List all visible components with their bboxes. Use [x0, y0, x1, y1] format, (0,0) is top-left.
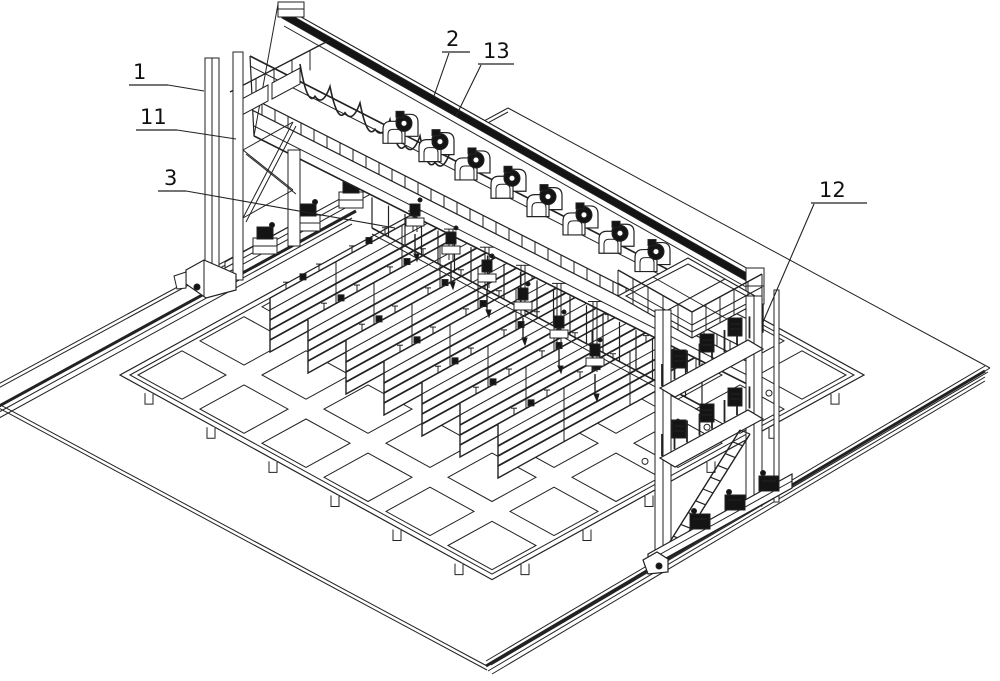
callout-11: 11 — [136, 105, 236, 139]
carriage-motor-mount — [576, 203, 584, 209]
column-rear-leg — [288, 150, 300, 246]
torch-motor-block — [554, 316, 564, 328]
callout-leader-1 — [168, 85, 204, 91]
ladder-rung — [703, 489, 713, 493]
torch-cross-slide — [514, 302, 532, 310]
platform-foot — [393, 530, 401, 541]
carriage-motor-hub — [401, 120, 407, 126]
torch-knob — [418, 198, 422, 202]
platform-bolt-hole — [642, 458, 648, 464]
platform-foot — [269, 461, 277, 472]
torch-motor-block — [410, 204, 420, 216]
shelf-equipment-unit — [728, 388, 742, 406]
ladder-rung — [725, 454, 735, 458]
platform-foot — [645, 495, 653, 506]
platform-bolt-hole — [704, 424, 710, 430]
torch-motor-block — [482, 260, 492, 272]
rail-bumper — [174, 272, 186, 289]
platform-foot — [831, 393, 839, 404]
torch-carriage-knob — [313, 200, 318, 205]
figure-stage: 111321312 — [0, 0, 1000, 681]
platform-foot — [521, 564, 529, 575]
torch-cross-slide — [442, 246, 460, 254]
platform-foot — [455, 564, 463, 575]
carriage-motor-hub — [617, 230, 623, 236]
torch-cross-slide — [550, 330, 568, 338]
callout-label-13: 13 — [483, 39, 510, 63]
torch-cross-slide — [406, 218, 424, 226]
torch-motor-block — [518, 288, 528, 300]
shelf-equipment-unit — [700, 334, 714, 352]
carriage-motor-hub — [509, 175, 515, 181]
platform-foot — [145, 393, 153, 404]
carriage-motor-mount — [432, 130, 440, 136]
torch-knob — [526, 282, 530, 286]
carriage-wheel — [194, 284, 200, 290]
carriage-motor-mount — [612, 221, 620, 227]
callout-13: 13 — [456, 39, 514, 116]
ladder-rung — [718, 465, 728, 469]
panel-clamp-block — [480, 301, 486, 307]
carriage-motor-hub — [545, 194, 551, 200]
torch-knob — [598, 338, 602, 342]
callout-2: 2 — [434, 27, 470, 96]
ladder-rung — [696, 501, 706, 505]
torch-cross-slide — [586, 358, 604, 366]
drive-unit — [725, 495, 745, 510]
drive-unit — [759, 476, 779, 491]
carriage-motor-mount — [504, 166, 512, 172]
torch-knob — [562, 310, 566, 314]
drive-unit-knob — [692, 509, 697, 514]
callout-leader-12 — [763, 204, 814, 322]
panel-clamp-block — [338, 295, 344, 301]
shelf-equipment-unit — [672, 350, 686, 368]
platform-foot — [331, 495, 339, 506]
callout-1: 1 — [129, 60, 204, 91]
carriage-motor-hub — [473, 157, 479, 163]
torch-knob — [490, 254, 494, 258]
column-rear-edge — [774, 290, 779, 502]
callout-label-3: 3 — [164, 166, 177, 190]
torch-motor-block — [590, 344, 600, 356]
panel-clamp-block — [366, 238, 372, 244]
callout-label-1: 1 — [133, 60, 146, 84]
carriage-motor-hub — [653, 249, 659, 255]
callout-leader-2 — [434, 53, 449, 96]
ladder-rung — [681, 524, 691, 528]
panel-clamp-block — [528, 400, 534, 406]
panel-clamp-block — [442, 280, 448, 286]
shelf-equipment-unit — [672, 420, 686, 438]
carriage-motor-mount — [540, 185, 548, 191]
callout-label-11: 11 — [140, 105, 167, 129]
drive-unit-knob — [727, 490, 732, 495]
panel-clamp-block — [490, 379, 496, 385]
patent-figure: 111321312 — [0, 0, 1000, 681]
torch-carriage-motor — [257, 227, 273, 239]
torch-cross-slide — [478, 274, 496, 282]
ladder-rung — [710, 477, 720, 481]
torch-carriage-motor — [300, 204, 316, 216]
callout-label-12: 12 — [819, 178, 846, 202]
shelf-equipment-unit — [700, 404, 714, 422]
drive-unit — [690, 514, 710, 529]
carriage-wheel — [656, 563, 662, 569]
carriage-motor-mount — [468, 148, 476, 154]
carriage-motor-hub — [581, 212, 587, 218]
panel-clamp-block — [376, 316, 382, 322]
panel-clamp-block — [414, 337, 420, 343]
carriage-motor-hub — [437, 139, 443, 145]
torch-carriage-knob — [270, 223, 275, 228]
torch-knob — [454, 226, 458, 230]
platform-foot — [583, 530, 591, 541]
drive-unit-knob — [761, 471, 766, 476]
column-second-post — [233, 52, 243, 280]
platform-foot — [207, 427, 215, 438]
carriage-motor-mount — [396, 111, 404, 117]
panel-clamp-block — [452, 358, 458, 364]
platform-bolt-hole — [766, 390, 772, 396]
shelf-equipment-unit — [728, 318, 742, 336]
panel-clamp-block — [300, 274, 306, 280]
callout-label-2: 2 — [446, 27, 459, 51]
panel-clamp-block — [404, 259, 410, 265]
callout-leader-13 — [456, 65, 481, 116]
carriage-motor-mount — [648, 240, 656, 246]
torch-motor-block — [446, 232, 456, 244]
